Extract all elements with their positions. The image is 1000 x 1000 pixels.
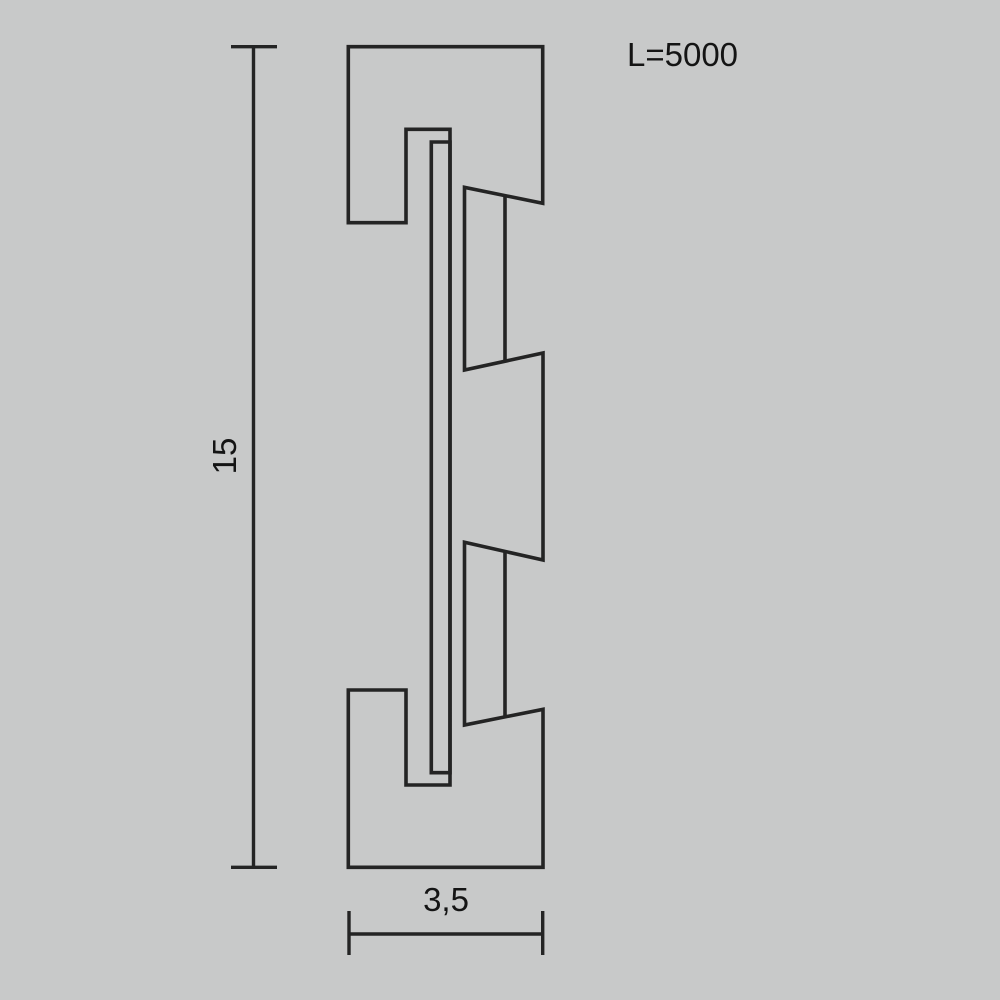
height-dimension-label: 15: [206, 438, 243, 475]
width-dimension-label: 3,5: [423, 881, 469, 918]
technical-drawing-canvas: 15 3,5 L=5000: [0, 0, 1000, 1000]
profile-drawing: 15 3,5 L=5000: [0, 0, 1000, 1000]
track-strip: [431, 142, 450, 773]
length-label: L=5000: [627, 36, 738, 73]
profile-outline: [348, 47, 543, 868]
width-dimension: 3,5: [349, 881, 543, 955]
height-dimension: 15: [206, 47, 277, 868]
